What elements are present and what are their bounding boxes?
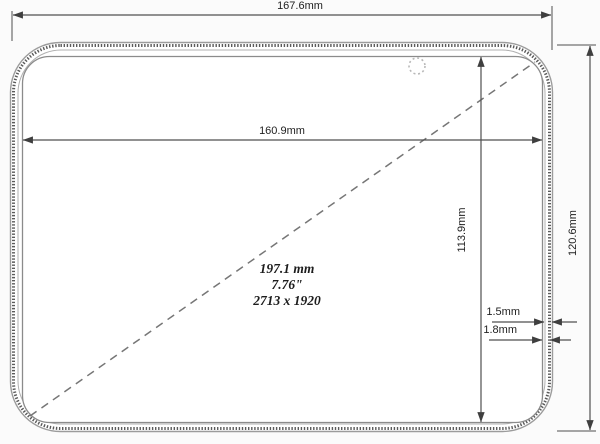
display-height-label: 113.9mm [456, 195, 468, 265]
diagonal-mm-label: 197.1 mm [207, 261, 367, 277]
outer-height-label: 120.6mm [567, 198, 579, 268]
bezel-gap-inner-label: 1.5mm [460, 306, 520, 318]
device-dimension-diagram: 167.6mm 160.9mm 113.9mm 120.6mm 1.5mm 1.… [0, 0, 600, 444]
resolution-label: 2713 x 1920 [207, 293, 367, 309]
outer-width-label: 167.6mm [240, 0, 360, 12]
bezel-gap-outer-label: 1.8mm [457, 324, 517, 336]
display-width-label: 160.9mm [222, 125, 342, 137]
diagonal-inches-label: 7.76" [207, 277, 367, 293]
diagonal-annotation: 197.1 mm 7.76" 2713 x 1920 [207, 261, 367, 309]
technical-drawing-canvas [0, 0, 600, 444]
